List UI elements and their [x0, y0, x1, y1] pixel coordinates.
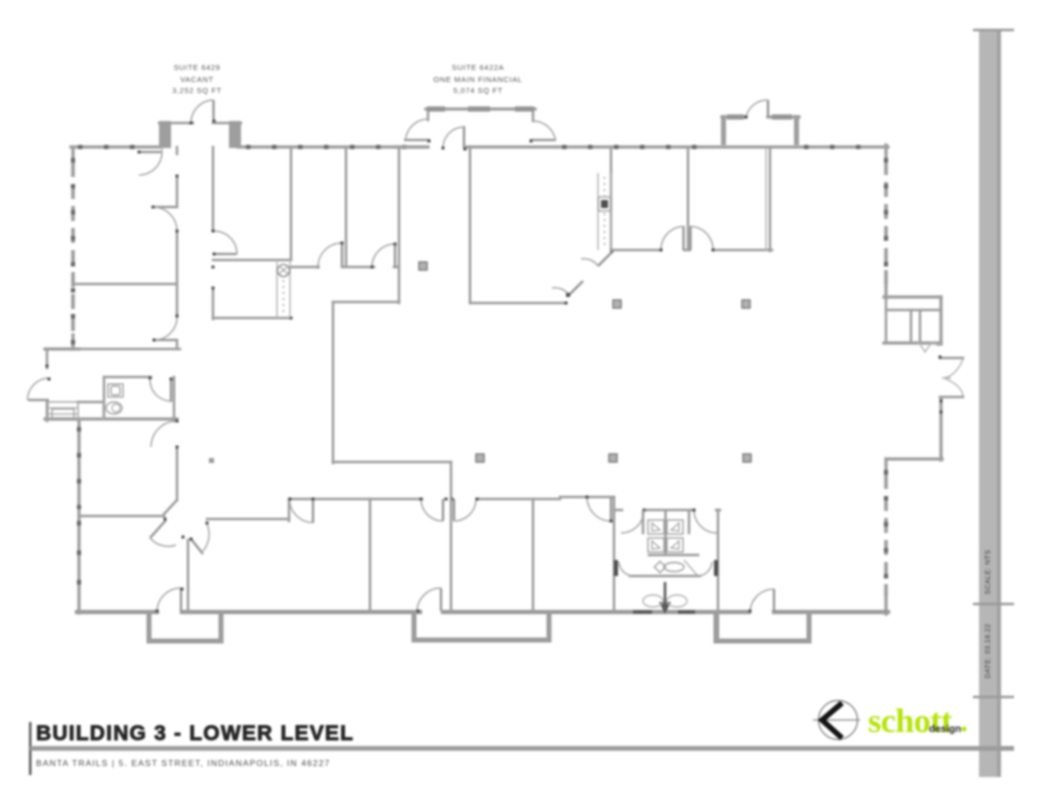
svg-text:BANTA TRAILS | 5. EAST STREE: BANTA TRAILS | 5. EAST STREET, INDIANAPO…	[36, 758, 330, 768]
svg-text:3,252 SQ FT: 3,252 SQ FT	[172, 86, 222, 95]
svg-text:ONE MAIN FINANCIAL: ONE MAIN FINANCIAL	[433, 75, 522, 84]
svg-text:SCALE: NTS: SCALE: NTS	[985, 550, 992, 595]
svg-text:5,074 SQ FT: 5,074 SQ FT	[453, 86, 503, 95]
svg-text:design: design	[929, 724, 961, 735]
svg-text:DATE: 03.18.22: DATE: 03.18.22	[985, 624, 992, 679]
svg-text:SUITE 6422A: SUITE 6422A	[452, 63, 504, 72]
svg-text:SUITE 6429: SUITE 6429	[174, 63, 221, 72]
svg-text:VACANT: VACANT	[180, 75, 213, 84]
svg-text:BUILDING 3 - LOWER LEVEL: BUILDING 3 - LOWER LEVEL	[36, 722, 354, 745]
